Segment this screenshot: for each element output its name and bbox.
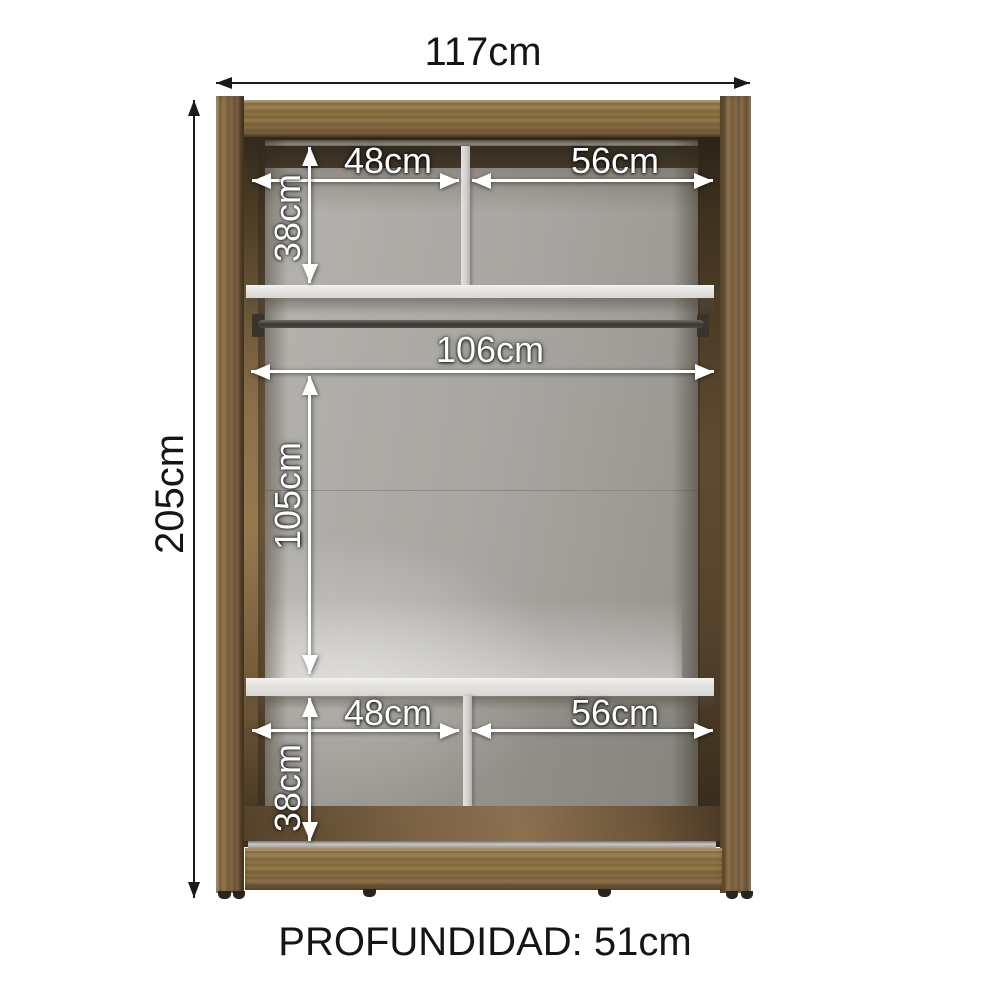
base-plinth [245,848,722,890]
total-height-label: 205cm [148,394,192,594]
main-height-label: 105cm [269,411,307,581]
bottom-right-width-label: 56cm [530,694,700,732]
foot-mid-1 [363,889,376,897]
top-beam [240,100,722,137]
top-right-width-label: 56cm [530,142,700,180]
back-panel-seam [266,490,698,491]
depth-caption: PROFUNDIDAD: 51cm [235,920,735,964]
hanging-rod [258,320,704,328]
right-side-wall-shade [672,137,700,847]
right-side-wall [698,137,720,847]
rod-span-label: 106cm [405,331,575,369]
total-height-arrow [193,100,195,898]
left-post [216,96,244,893]
foot-right-1 [726,891,738,899]
foot-left-1 [218,891,231,899]
bottom-height-arrow [308,698,311,841]
foot-right-2 [741,891,753,899]
top-shelf [246,285,714,298]
bottom-right-width-arrow [472,729,713,732]
rod-span-arrow [251,370,714,373]
right-post [720,96,751,893]
total-width-label: 117cm [383,30,583,74]
foot-left-2 [233,891,245,899]
wardrobe-dimension-diagram: 117cm 205cm 48cm 56cm 38cm 106cm 105cm 4… [0,0,1000,1000]
top-shelf-shadow [246,298,714,314]
total-width-arrow [216,82,750,84]
bottom-height-label: 38cm [269,703,307,873]
bottom-door-track [248,841,716,848]
foot-mid-2 [598,889,611,897]
bottom-shelf-light [262,600,682,678]
top-right-width-arrow [472,179,713,182]
main-height-arrow [308,376,311,674]
top-height-arrow [308,147,311,283]
